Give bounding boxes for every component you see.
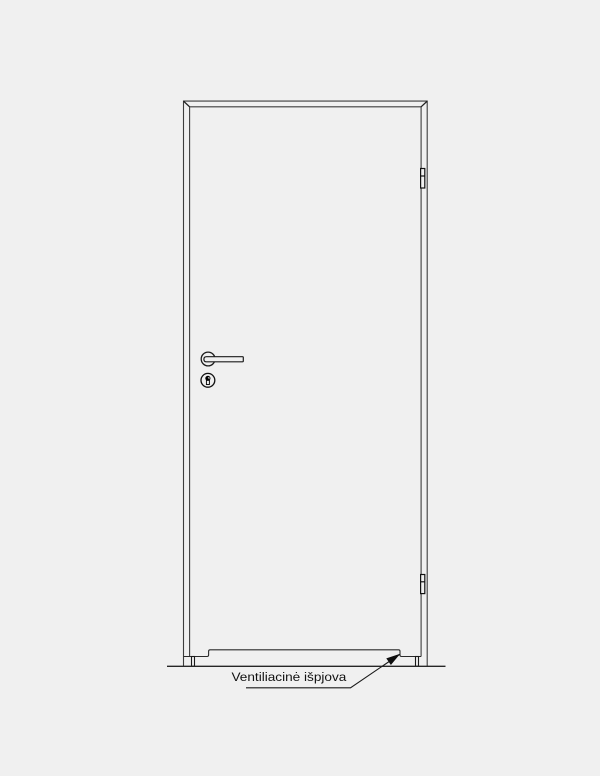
svg-text:Ventiliacinė išpjova: Ventiliacinė išpjova [232, 670, 347, 684]
